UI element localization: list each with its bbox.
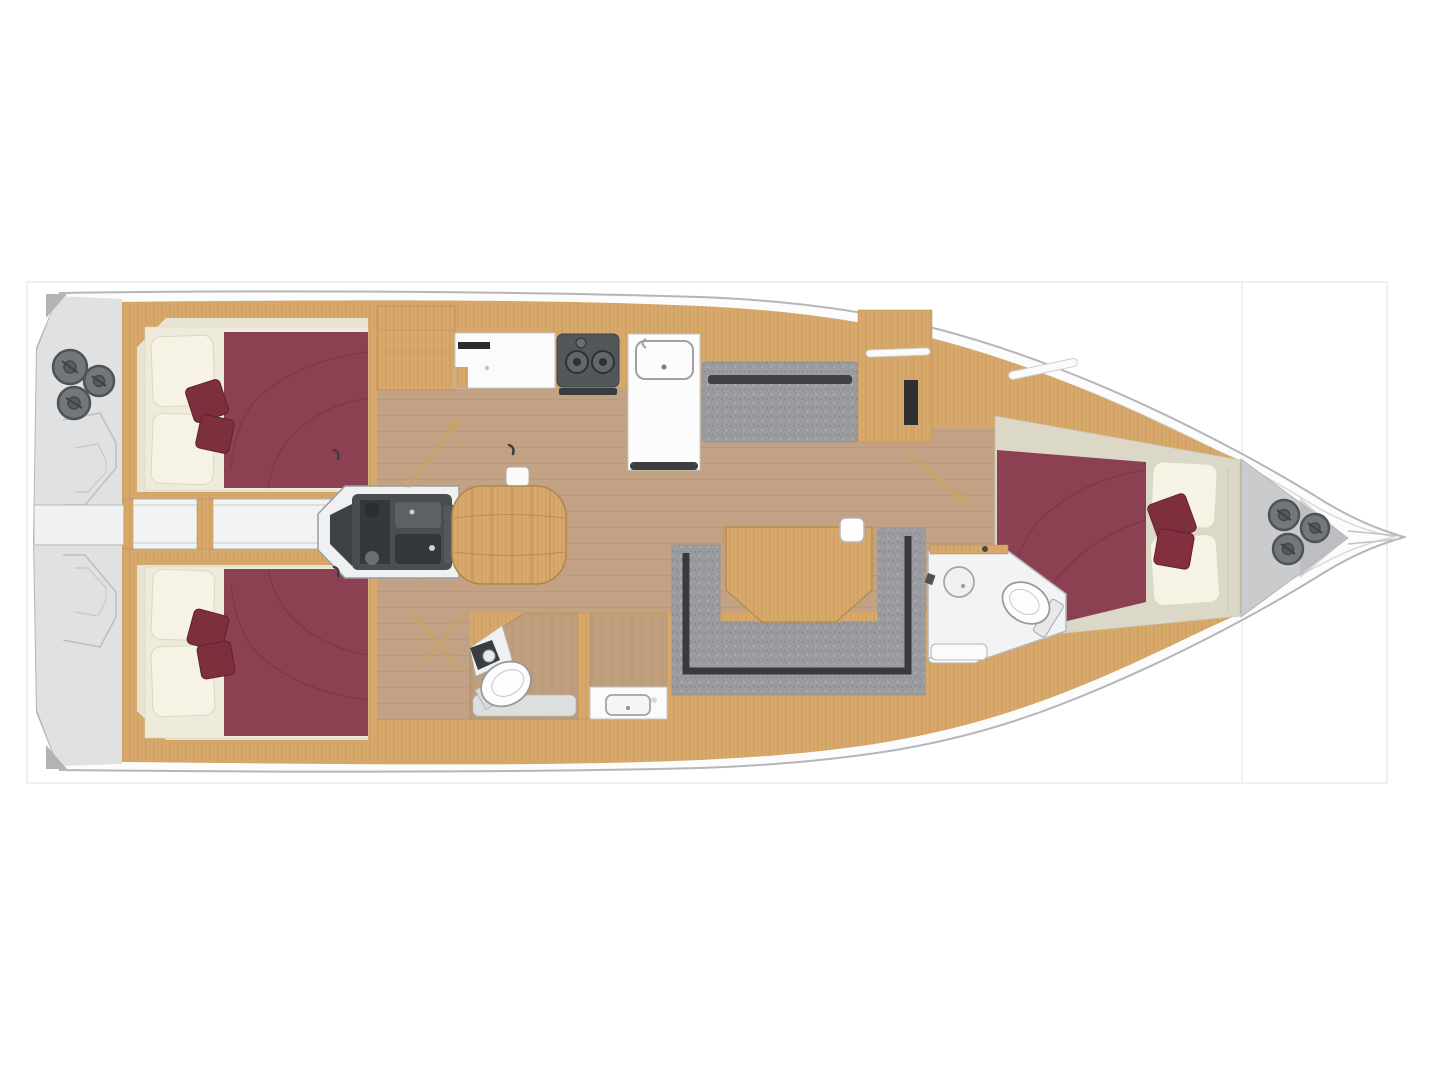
worktop-handle — [458, 342, 490, 349]
throw-cushion — [196, 640, 235, 679]
galley-cabinet — [377, 306, 455, 390]
engine-detail — [429, 545, 435, 551]
companionway-steps — [452, 486, 566, 584]
steps-drum — [452, 486, 566, 584]
walkway-channel — [124, 499, 345, 549]
winch-icon — [58, 387, 90, 419]
throw-cushion — [195, 414, 235, 454]
winch-icon — [1269, 500, 1299, 530]
wardrobe-body — [858, 310, 932, 442]
locker-panel — [904, 380, 918, 425]
corner-sink-bowl — [483, 650, 495, 662]
aft-cabin-bottom — [137, 565, 368, 740]
stove-knob — [576, 338, 586, 348]
burner-center — [599, 358, 607, 366]
worktop-notch — [455, 367, 468, 388]
vanity-drain — [626, 706, 630, 710]
door-handle — [982, 546, 988, 552]
worktop-knob — [485, 366, 489, 370]
island-body — [628, 334, 700, 470]
bench-seat — [702, 362, 858, 442]
head-door — [930, 545, 1008, 554]
sink-drain — [662, 365, 667, 370]
floor-plan-svg — [0, 0, 1440, 1080]
engine-part — [395, 502, 441, 528]
page — [0, 0, 1440, 1080]
table-cup — [840, 518, 864, 542]
walkway-post — [197, 499, 213, 549]
starboard-bench — [702, 362, 858, 442]
winch-icon — [84, 366, 114, 396]
mast-step-hatch — [506, 467, 529, 486]
shower-room — [590, 613, 667, 719]
galley-worktop — [455, 333, 555, 388]
engine-room — [318, 486, 459, 578]
throw-cushion — [1153, 528, 1195, 570]
head-partition-wall — [578, 613, 590, 719]
head-bench — [931, 644, 987, 660]
oven-front — [559, 388, 617, 395]
winch-icon — [1273, 534, 1303, 564]
bed-duvet — [224, 569, 368, 736]
stove — [557, 334, 619, 395]
engine-pulley — [365, 551, 379, 565]
engine-detail — [410, 510, 415, 515]
burner-center — [573, 358, 581, 366]
wardrobe-unit — [858, 310, 932, 442]
vanity-sink-icon — [606, 695, 650, 715]
transom-walkway — [34, 499, 345, 549]
island-footer — [630, 462, 698, 470]
bench-backrest — [708, 375, 852, 384]
walkway-post — [124, 499, 133, 549]
round-sink-icon — [944, 567, 974, 597]
galley-island — [628, 334, 700, 470]
winch-icon — [53, 350, 87, 384]
winch-icon — [1301, 514, 1329, 542]
walkway-recess — [34, 505, 124, 545]
vanity-soap — [651, 697, 657, 703]
aft-cabin-top — [137, 318, 368, 492]
sink-drain — [961, 584, 965, 588]
engine-pulley — [364, 502, 380, 518]
